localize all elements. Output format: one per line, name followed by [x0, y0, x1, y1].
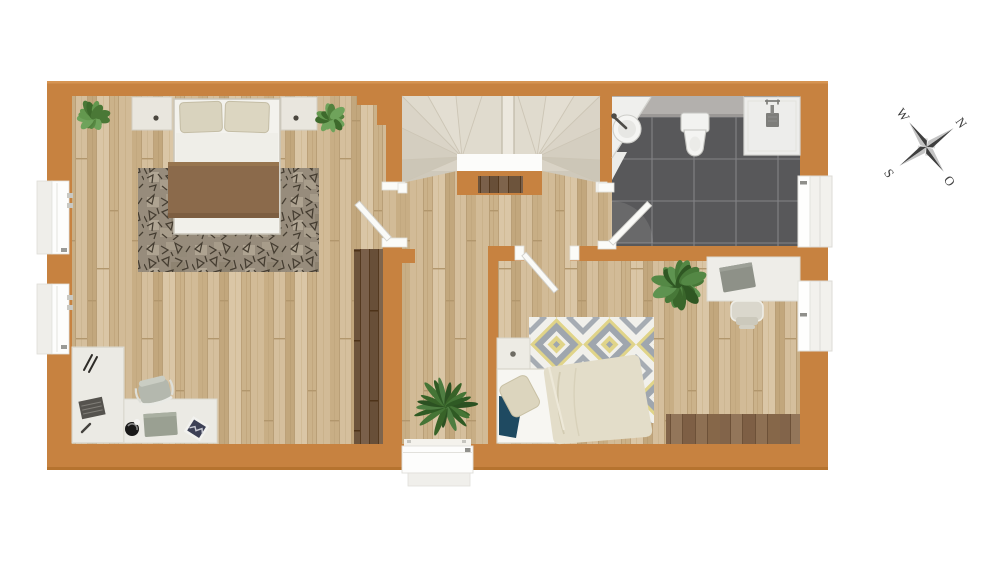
- svg-text:W: W: [893, 105, 913, 124]
- svg-text:S: S: [881, 166, 897, 181]
- svg-text:O: O: [941, 173, 959, 189]
- svg-text:N: N: [952, 114, 970, 131]
